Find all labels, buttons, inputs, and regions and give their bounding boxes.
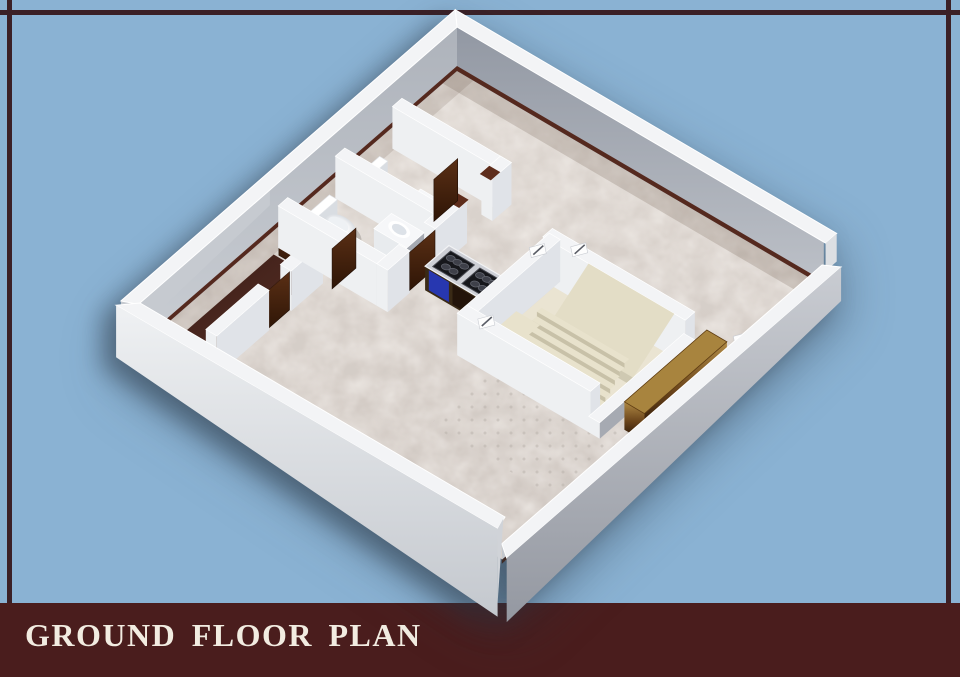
floor-plan-render <box>0 0 960 677</box>
screenshot-stage: GROUND FLOOR PLAN <box>0 0 960 677</box>
